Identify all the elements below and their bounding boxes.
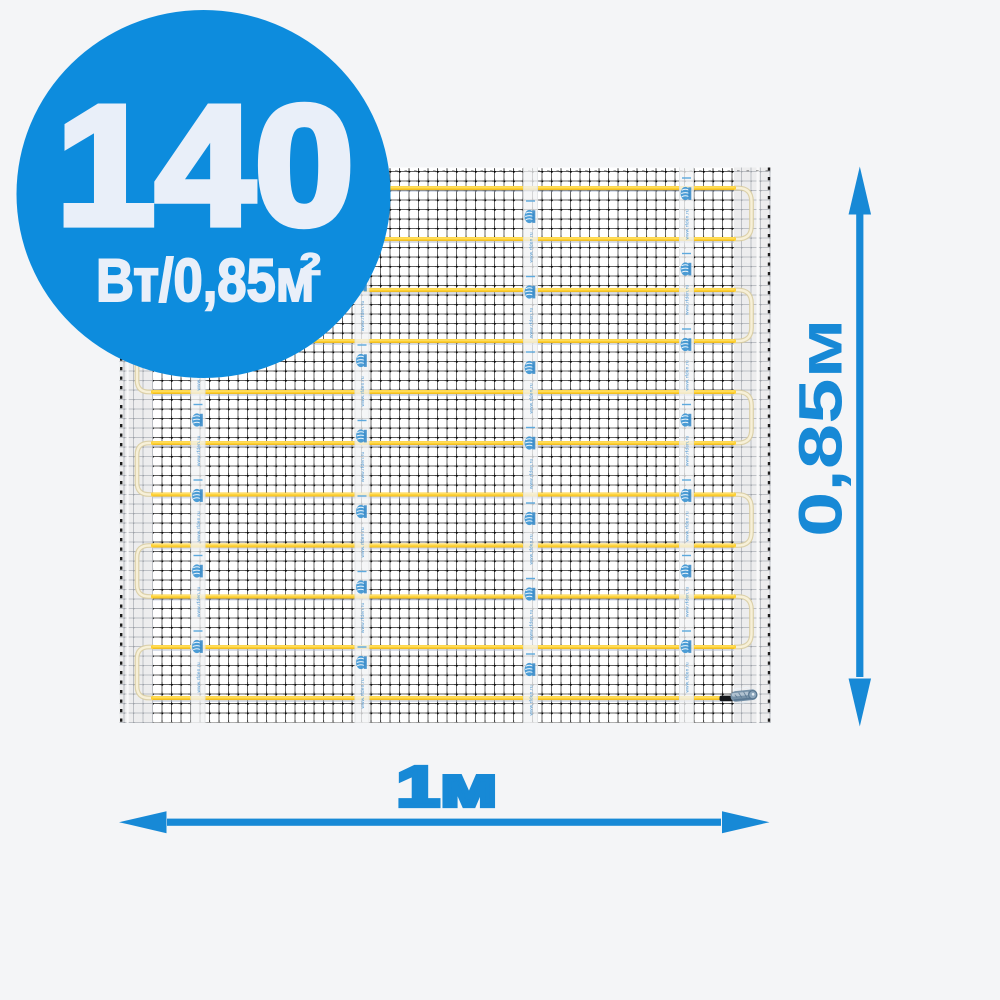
svg-text:0,85м: 0,85м xyxy=(787,318,855,537)
svg-text:www.rfden.ru: www.rfden.ru xyxy=(360,527,365,557)
svg-text:www.rfden.ru: www.rfden.ru xyxy=(360,376,365,406)
svg-text:www.rfden.ru: www.rfden.ru xyxy=(529,534,534,564)
svg-text:1м: 1м xyxy=(396,755,497,818)
svg-text:www.rfden.ru: www.rfden.ru xyxy=(685,436,690,466)
svg-text:www.rfden.ru: www.rfden.ru xyxy=(529,610,534,640)
svg-text:www.rfden.ru: www.rfden.ru xyxy=(685,511,690,541)
svg-text:www.rfden.ru: www.rfden.ru xyxy=(360,301,365,331)
svg-text:2: 2 xyxy=(300,248,321,282)
svg-text:www.rfden.ru: www.rfden.ru xyxy=(685,587,690,617)
svg-text:www.rfden.ru: www.rfden.ru xyxy=(196,511,201,541)
svg-text:www.rfden.ru: www.rfden.ru xyxy=(360,603,365,633)
svg-text:www.rfden.ru: www.rfden.ru xyxy=(529,232,534,262)
svg-text:www.rfden.ru: www.rfden.ru xyxy=(196,436,201,466)
svg-text:140: 140 xyxy=(56,70,354,260)
svg-text:Вт/0,85м: Вт/0,85м xyxy=(96,247,314,314)
svg-text:www.rfden.ru: www.rfden.ru xyxy=(685,360,690,390)
svg-text:www.rfden.ru: www.rfden.ru xyxy=(360,452,365,482)
svg-text:www.rfden.ru: www.rfden.ru xyxy=(529,685,534,715)
svg-text:www.rfden.ru: www.rfden.ru xyxy=(685,209,690,239)
svg-text:www.rfden.ru: www.rfden.ru xyxy=(529,308,534,338)
svg-text:www.rfden.ru: www.rfden.ru xyxy=(360,678,365,708)
svg-text:www.rfden.ru: www.rfden.ru xyxy=(685,662,690,692)
svg-text:www.rfden.ru: www.rfden.ru xyxy=(529,383,534,413)
svg-text:www.rfden.ru: www.rfden.ru xyxy=(196,662,201,692)
svg-text:www.rfden.ru: www.rfden.ru xyxy=(529,459,534,489)
svg-text:www.rfden.ru: www.rfden.ru xyxy=(196,587,201,617)
svg-text:www.rfden.ru: www.rfden.ru xyxy=(685,285,690,315)
